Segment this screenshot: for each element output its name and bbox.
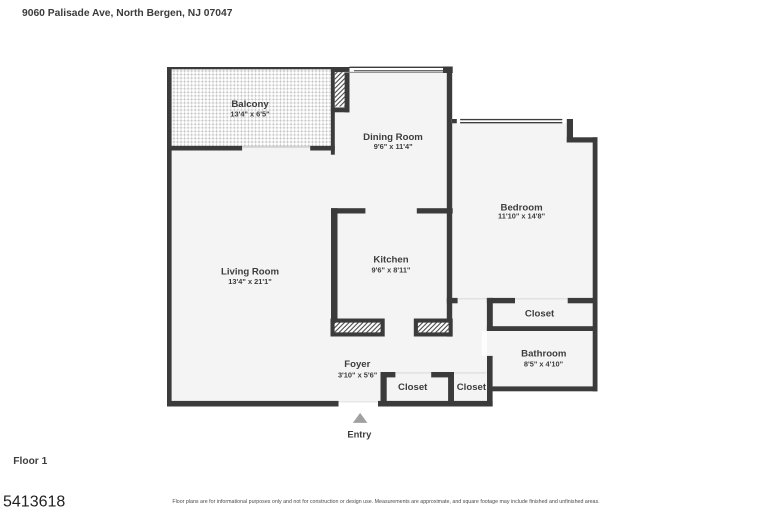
svg-text:Closet: Closet	[525, 309, 555, 320]
svg-text:5413618: 5413618	[3, 493, 65, 510]
svg-text:9060 Palisade Ave, North Berge: 9060 Palisade Ave, North Bergen, NJ 0704…	[22, 8, 233, 19]
svg-text:Kitchen: Kitchen	[373, 255, 408, 266]
svg-text:9'6" x 11'4": 9'6" x 11'4"	[374, 142, 413, 151]
svg-text:Closet: Closet	[398, 382, 428, 393]
svg-text:Living Room: Living Room	[221, 266, 279, 277]
svg-text:3'10" x 5'6": 3'10" x 5'6"	[338, 370, 378, 379]
svg-text:9'6" x 8'11": 9'6" x 8'11"	[372, 265, 411, 274]
svg-text:Foyer: Foyer	[344, 359, 370, 370]
svg-text:Entry: Entry	[347, 428, 372, 439]
svg-text:Floor 1: Floor 1	[13, 456, 47, 467]
svg-text:Floor plans are for informatio: Floor plans are for informational purpos…	[172, 499, 599, 505]
svg-text:13'4" x 6'5": 13'4" x 6'5"	[230, 110, 270, 119]
svg-text:8'5" x 4'10": 8'5" x 4'10"	[524, 360, 564, 369]
svg-text:13'4" x 21'1": 13'4" x 21'1"	[228, 277, 272, 286]
svg-text:Closet: Closet	[457, 382, 487, 393]
svg-text:Bathroom: Bathroom	[521, 349, 566, 360]
svg-text:11'10" x 14'8": 11'10" x 14'8"	[498, 212, 546, 221]
svg-text:Balcony: Balcony	[231, 99, 269, 110]
